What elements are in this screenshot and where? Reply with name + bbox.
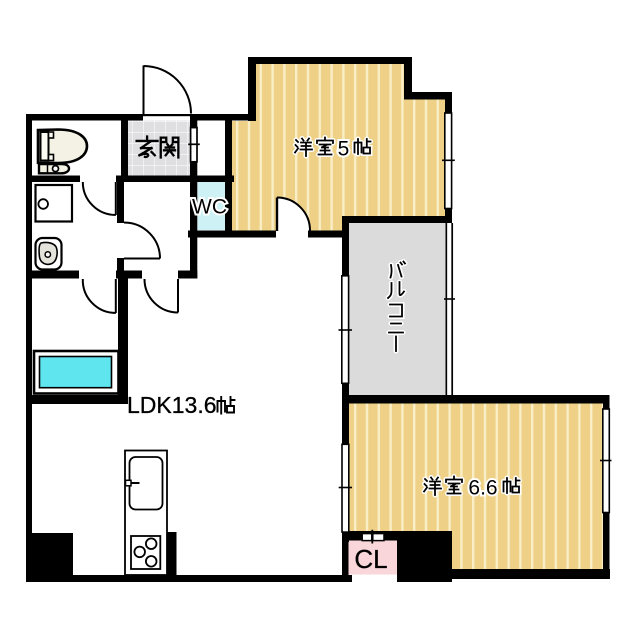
svg-text:5: 5	[338, 138, 350, 161]
svg-text:LDK13.6: LDK13.6	[127, 392, 217, 418]
svg-text:CL: CL	[354, 544, 387, 574]
svg-text:6.6: 6.6	[468, 477, 497, 500]
svg-text:WC: WC	[192, 196, 227, 219]
